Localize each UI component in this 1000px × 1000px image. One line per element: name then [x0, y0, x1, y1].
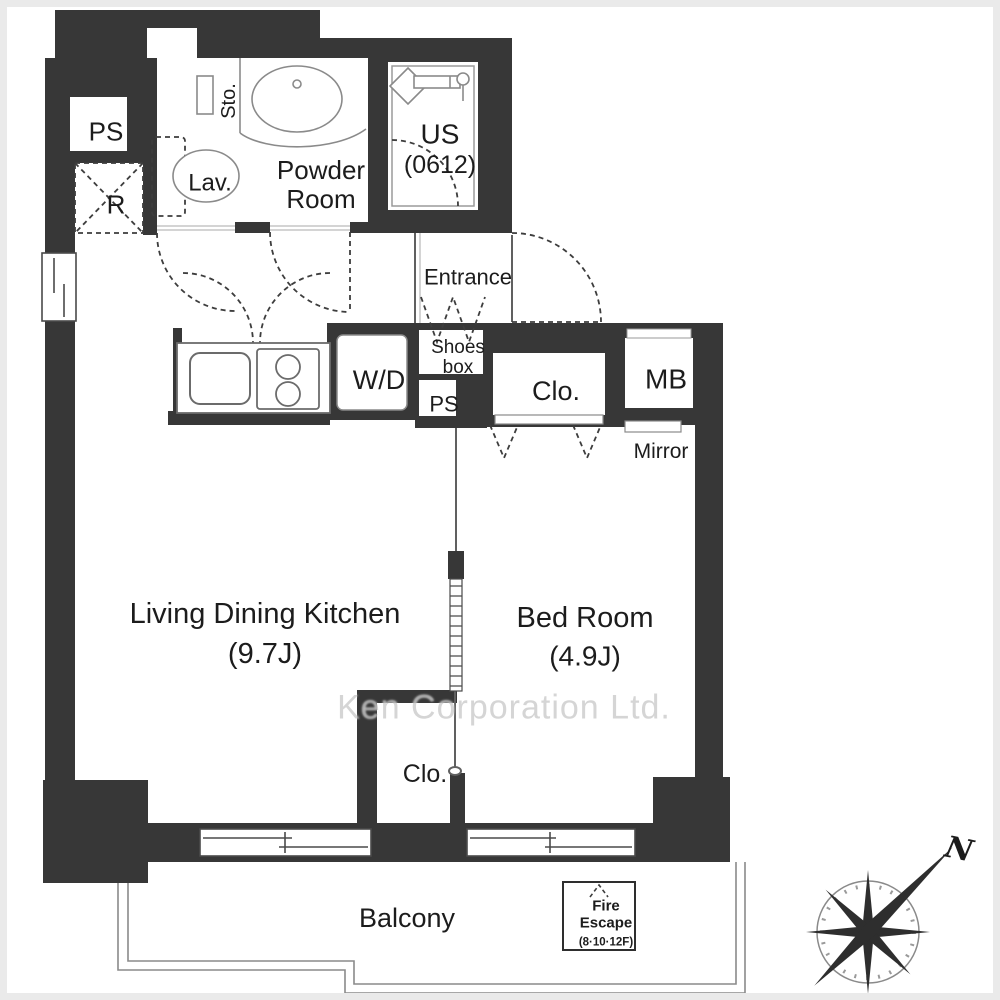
meter-box-label: MB — [645, 363, 687, 394]
ldk-label: Living Dining Kitchen — [130, 598, 401, 630]
unit-bath-label: US — [421, 118, 460, 149]
storage-door — [197, 76, 213, 114]
closet-ldk-label: Clo. — [403, 760, 447, 788]
bedroom-label: Bed Room — [516, 602, 653, 634]
powder-room-label: Powder Room — [256, 156, 386, 214]
sliding-door-hatch — [450, 579, 462, 691]
fire-escape-floors-label: (8·10·12F) — [579, 937, 633, 950]
entrance-label: Entrance — [424, 266, 512, 291]
shoes-box-label: Shoes box — [428, 338, 488, 378]
lavatory-label: Lav. — [188, 171, 232, 198]
unit-bath-size-label: (0612) — [404, 151, 476, 179]
mirror-label: Mirror — [634, 440, 689, 464]
storage-label: Sto. — [218, 83, 240, 119]
pipe-space-top-label: PS — [89, 117, 124, 146]
floor-plan: PS R Sto. Lav. Powder Room US (0612) Ent… — [0, 0, 1000, 1000]
north-needle — [809, 842, 957, 990]
floor-plan-drawing — [7, 7, 993, 993]
closet-hall-label: Clo. — [532, 376, 580, 406]
fire-escape-label: Fire Escape — [577, 899, 635, 932]
watermark: Ken Corporation Ltd. — [337, 689, 671, 728]
compass-rose — [806, 842, 958, 993]
kitchen-sink — [190, 353, 250, 404]
balcony-label: Balcony — [359, 903, 455, 933]
bedroom-size-label: (4.9J) — [549, 640, 621, 671]
washer-dryer-label: W/D — [353, 365, 405, 395]
powder-sink — [240, 58, 366, 147]
refrigerator-label: R — [107, 190, 126, 219]
kitchen-counter — [177, 343, 330, 413]
pipe-space-hall-label: PS — [429, 393, 458, 418]
ldk-size-label: (9.7J) — [228, 638, 302, 670]
